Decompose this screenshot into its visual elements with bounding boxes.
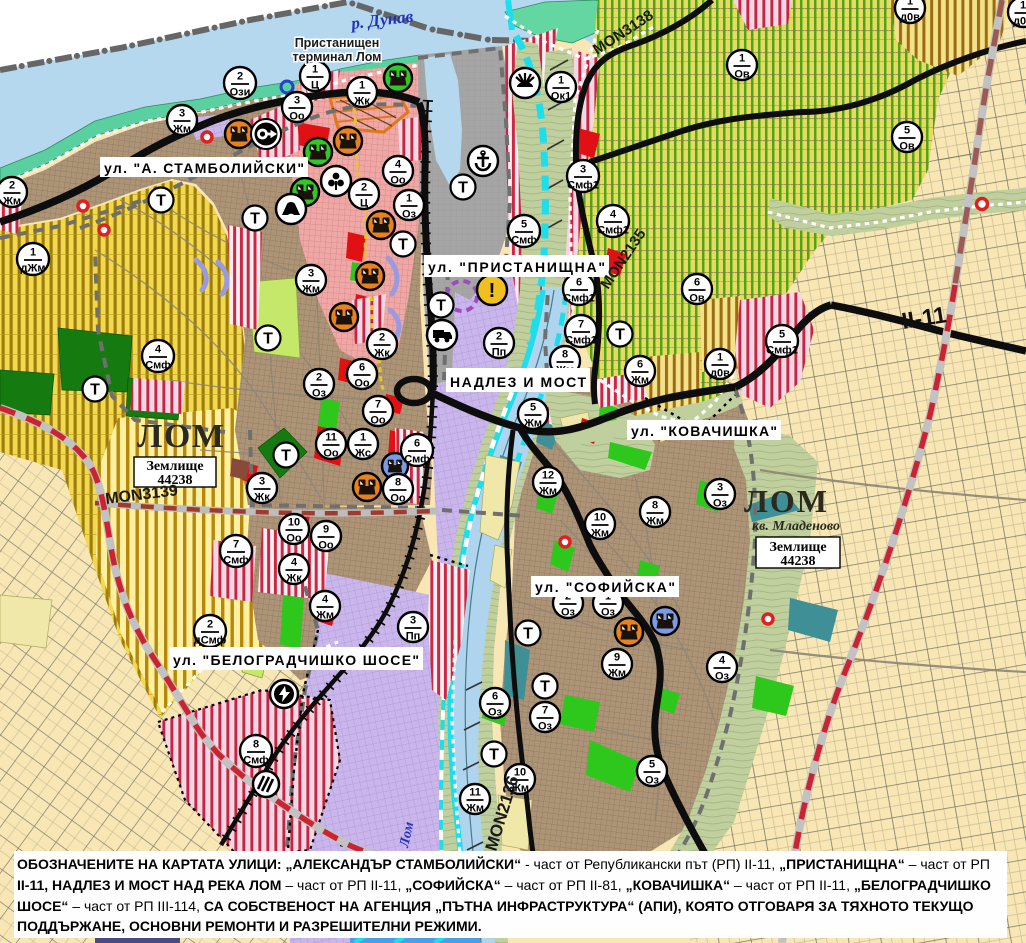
svg-text:Жс: Жс [354,448,371,460]
svg-text:Оо: Оо [390,175,406,187]
svg-text:Жк: Жк [285,573,302,585]
svg-text:8: 8 [253,739,259,751]
svg-text:Жм: Жм [172,124,191,136]
svg-text:2: 2 [207,619,213,631]
svg-text:Смф1: Смф1 [563,293,595,305]
svg-text:Оо: Оо [390,493,406,505]
svg-text:10: 10 [288,517,300,529]
svg-text:Смф: Смф [223,555,249,567]
svg-text:6: 6 [492,691,498,703]
svg-text:Ов: Ов [734,69,750,81]
svg-text:8: 8 [652,500,658,512]
svg-text:ул. "А. СТАМБОЛИЙСКИ": ул. "А. СТАМБОЛИЙСКИ" [104,159,304,176]
svg-text:Жк: Жк [373,348,390,360]
svg-text:Оз: Оз [488,707,503,719]
svg-text:Смф1: Смф1 [565,335,597,347]
svg-text:Т: Т [540,679,550,696]
svg-text:1: 1 [907,0,913,8]
svg-text:6: 6 [414,438,420,450]
svg-text:8: 8 [395,477,401,489]
svg-text:2: 2 [361,182,367,194]
svg-text:ул. "БЕЛОГРАДЧИШКО ШОСЕ": ул. "БЕЛОГРАДЧИШКО ШОСЕ" [173,652,419,668]
svg-text:1: 1 [739,53,745,65]
svg-text:Оо: Оо [370,415,386,427]
svg-text:Смф: Смф [511,235,537,247]
svg-text:2: 2 [237,71,243,83]
svg-text:Т: Т [615,327,625,344]
svg-text:6: 6 [576,277,582,289]
svg-text:дЖм: дЖм [20,263,45,275]
svg-text:5: 5 [521,219,527,231]
svg-text:Оо: Оо [318,540,334,552]
svg-text:7: 7 [375,399,381,411]
svg-text:Жм: Жм [538,486,557,498]
svg-text:терминал Лом: терминал Лом [293,50,382,64]
svg-text:Ов: Ов [689,293,705,305]
svg-text:Т: Т [436,298,446,315]
svg-text:Ц: Ц [311,80,319,92]
svg-text:Жм: Жм [2,196,21,208]
svg-text:6: 6 [637,359,643,371]
svg-text:9: 9 [614,652,620,664]
svg-text:1: 1 [406,193,412,205]
svg-text:Оо: Оо [286,533,302,545]
svg-text:3: 3 [410,615,416,627]
svg-text:НАДЛЕЗ И МОСТ: НАДЛЕЗ И МОСТ [450,374,586,390]
svg-text:дСмф: дСмф [194,635,227,647]
svg-text:Оз: Оз [713,498,728,510]
svg-text:Т: Т [489,747,499,764]
svg-text:Оз: Оз [538,721,553,733]
svg-text:Оз: Оз [601,607,616,619]
svg-text:Оо: Оо [354,378,370,390]
svg-text:3: 3 [259,476,265,488]
svg-text:1: 1 [312,64,318,76]
svg-text:Пристанищен: Пристанищен [295,36,380,50]
svg-text:8: 8 [562,349,568,361]
svg-text:1: 1 [30,247,36,259]
svg-text:Землище: Землище [146,459,203,474]
svg-text:Жм: Жм [523,418,542,430]
svg-text:1: 1 [558,75,564,87]
svg-text:4: 4 [719,655,726,667]
svg-text:2: 2 [316,372,322,384]
svg-text:3: 3 [580,164,586,176]
svg-text:Т: Т [156,193,166,210]
svg-text:Оо: Оо [323,448,339,460]
svg-text:3: 3 [717,482,723,494]
svg-text:ул. "ПРИСТАНИЩНА": ул. "ПРИСТАНИЩНА" [428,259,605,275]
svg-text:11: 11 [325,432,337,444]
svg-text:Жм: Жм [301,284,320,296]
svg-text:Смф1: Смф1 [597,225,629,237]
svg-text:Ов: Ов [899,141,915,153]
svg-text:3: 3 [294,95,300,107]
svg-text:Т: Т [281,448,291,465]
svg-text:Жм: Жм [630,375,649,387]
svg-text:2: 2 [496,331,502,343]
svg-text:Т: Т [250,211,260,228]
svg-text:6: 6 [694,277,700,289]
svg-text:10: 10 [594,512,606,524]
svg-text:кв. Младеново: кв. Младеново [752,519,840,534]
svg-text:ул. "СОФИЙСКА": ул. "СОФИЙСКА" [535,578,675,595]
svg-text:5: 5 [779,329,785,341]
svg-text:4: 4 [322,594,329,606]
svg-text:4: 4 [610,209,617,221]
svg-text:Т: Т [263,331,273,348]
svg-text:ул. "КОВАЧИШКА": ул. "КОВАЧИШКА" [631,423,777,439]
svg-text:ЛОМ: ЛОМ [744,483,829,519]
svg-text:Жм: Жм [590,528,609,540]
svg-text:ЛОМ: ЛОМ [137,418,225,455]
svg-text:6: 6 [359,362,365,374]
svg-text:Т: Т [90,382,100,399]
svg-text:Жк: Жк [253,492,270,504]
svg-text:4: 4 [155,344,162,356]
svg-text:Ок1: Ок1 [551,91,571,103]
svg-text:3: 3 [308,268,314,280]
svg-text:7: 7 [542,705,548,717]
svg-text:3: 3 [179,108,185,120]
svg-text:Жм: Жм [315,610,334,622]
svg-text:Жк: Жк [353,96,370,108]
svg-text:Смф: Смф [243,755,269,767]
svg-text:9: 9 [323,524,329,536]
svg-text:4: 4 [395,159,402,171]
svg-text:4: 4 [291,557,298,569]
svg-text:Смф1: Смф1 [766,345,798,357]
svg-text:Землище: Землище [769,540,826,555]
svg-text:1: 1 [1020,0,1026,12]
svg-text:1: 1 [359,80,365,92]
svg-text:Пп: Пп [406,631,421,643]
svg-text:Жм: Жм [645,516,664,528]
svg-text:5: 5 [904,125,910,137]
svg-text:Оо: Оо [289,111,305,123]
svg-text:д0в: д0в [1013,16,1026,28]
svg-text:Оз: Оз [561,607,576,619]
svg-text:Смф: Смф [145,360,171,372]
svg-text:!: ! [489,280,496,302]
svg-text:Оз: Оз [645,775,660,787]
svg-text:Т: Т [458,180,468,197]
svg-text:д0в: д0в [710,368,730,380]
svg-text:12: 12 [542,470,554,482]
svg-text:44238: 44238 [781,554,816,569]
svg-text:2: 2 [9,180,15,192]
svg-text:Ози: Ози [230,87,251,99]
svg-text:Оз: Оз [715,671,730,683]
svg-text:2: 2 [379,332,385,344]
svg-text:Оз: Оз [312,388,327,400]
svg-text:Смф1: Смф1 [567,180,599,192]
svg-text:11: 11 [469,787,481,799]
svg-text:5: 5 [649,759,655,771]
svg-text:Пп: Пп [492,347,507,359]
svg-text:д0в: д0в [900,12,920,24]
svg-text:Т: Т [523,626,533,643]
svg-text:Жм: Жм [465,803,484,815]
svg-text:Т: Т [398,237,408,254]
svg-text:5: 5 [530,402,536,414]
svg-text:Жм: Жм [607,668,626,680]
svg-text:1: 1 [717,352,723,364]
svg-text:10: 10 [514,767,526,779]
svg-text:Ц: Ц [360,198,368,210]
svg-text:7: 7 [578,319,584,331]
svg-text:Смф: Смф [404,454,430,466]
svg-text:Оз: Оз [402,209,417,221]
svg-text:1: 1 [360,432,366,444]
svg-text:7: 7 [233,539,239,551]
